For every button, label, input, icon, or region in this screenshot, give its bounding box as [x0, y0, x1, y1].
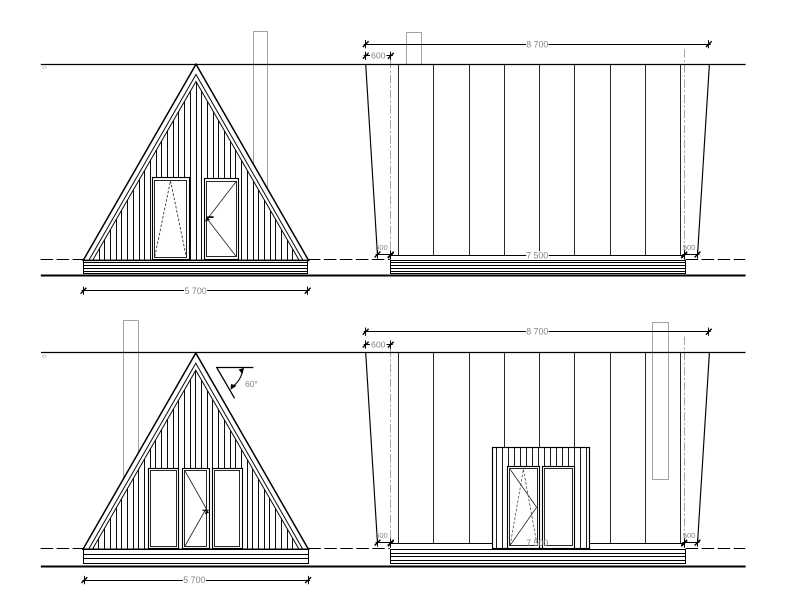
svg-text:5 700: 5 700: [183, 575, 205, 585]
svg-text:60°: 60°: [245, 379, 258, 389]
svg-text:500: 500: [683, 243, 695, 252]
svg-text:7 500: 7 500: [526, 538, 548, 548]
svg-text:5 700: 5 700: [184, 286, 206, 296]
svg-text:8 700: 8 700: [526, 327, 548, 337]
svg-text:500: 500: [375, 243, 387, 252]
svg-text:600: 600: [371, 340, 386, 350]
svg-text:500: 500: [683, 531, 695, 540]
svg-text:8 700: 8 700: [526, 40, 548, 50]
svg-text:600: 600: [371, 51, 386, 61]
svg-text:7 500: 7 500: [526, 251, 548, 261]
svg-text:500: 500: [375, 531, 387, 540]
